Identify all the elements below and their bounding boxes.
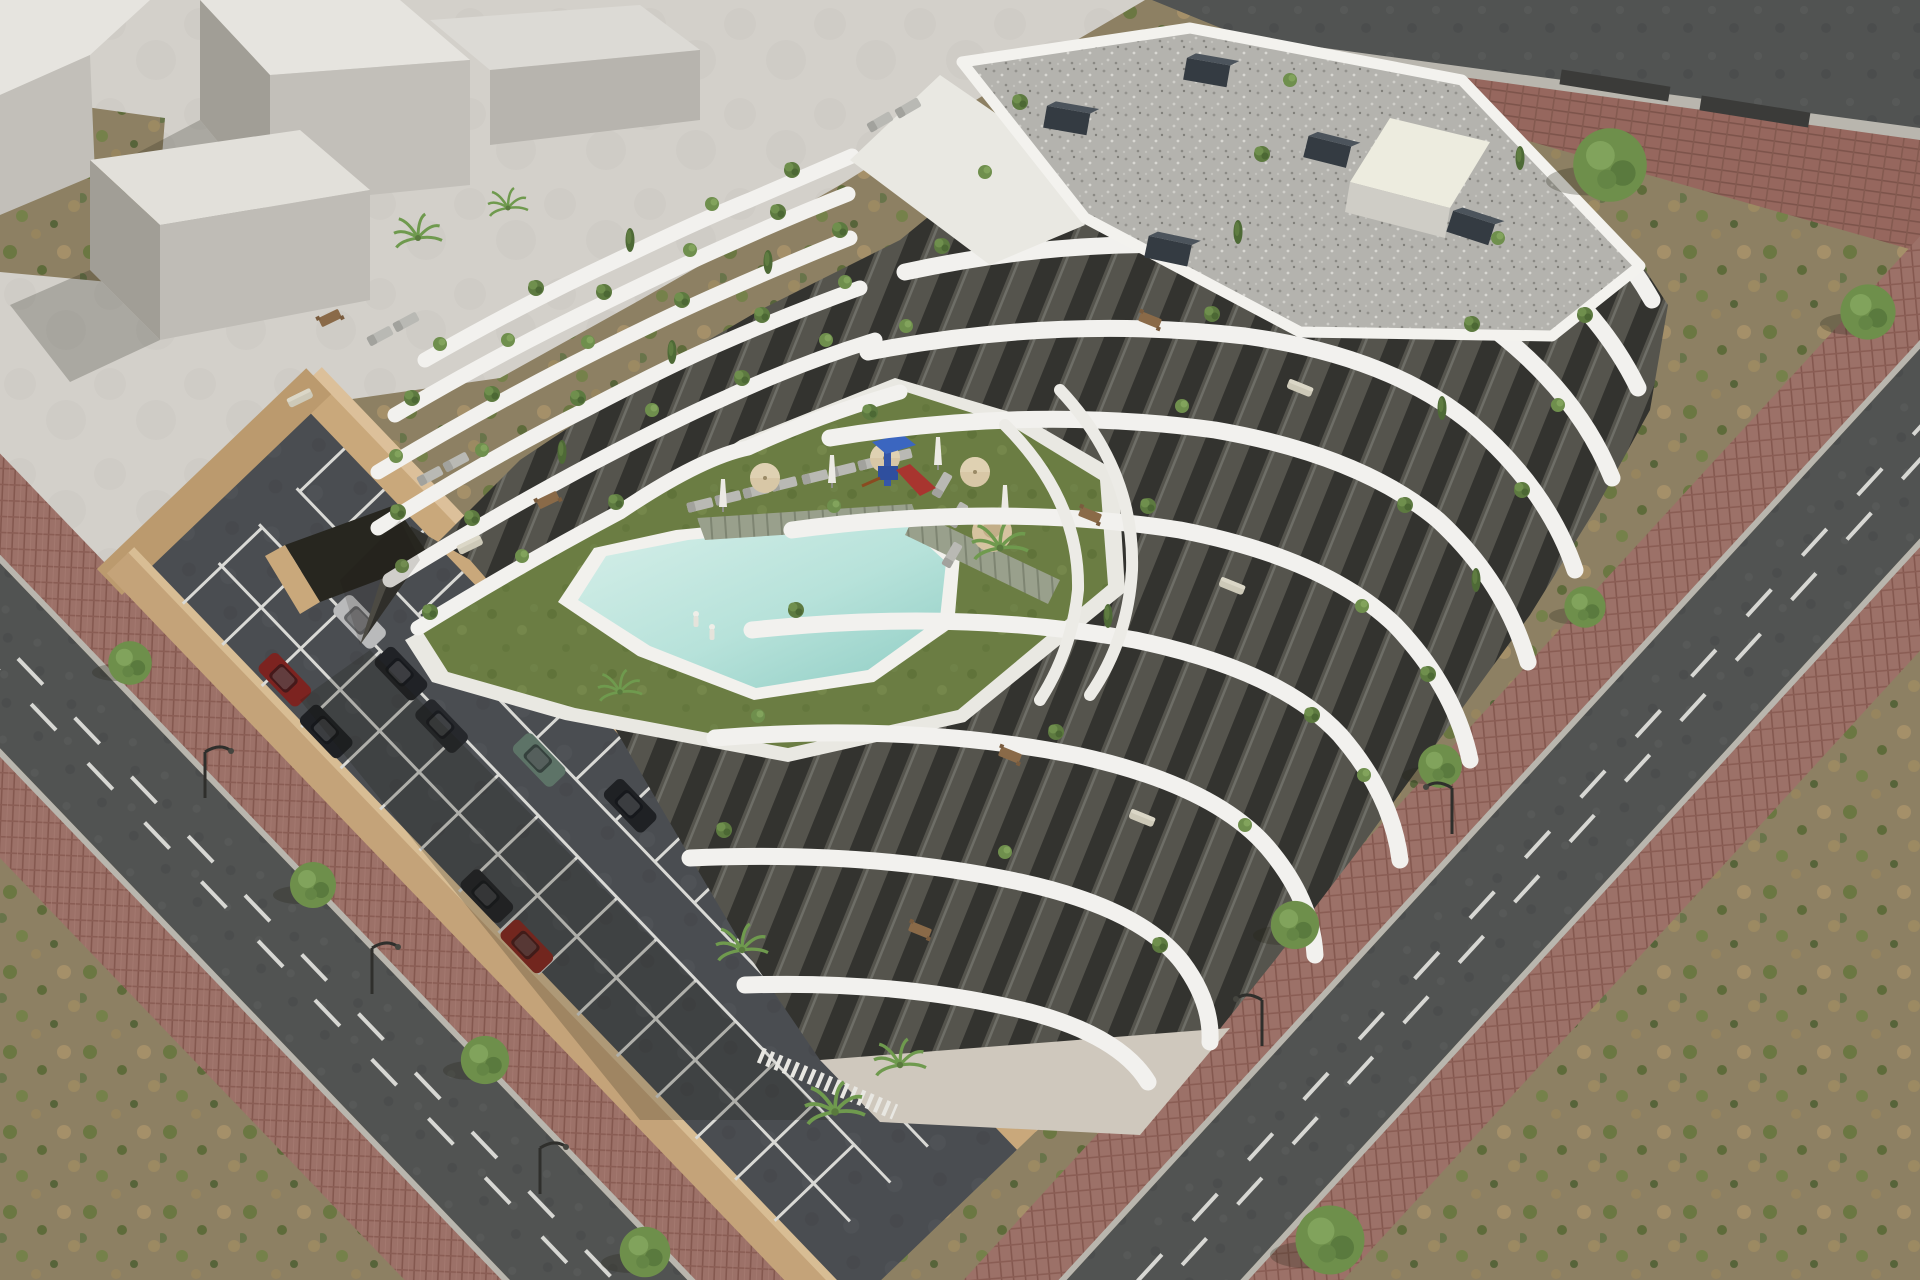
person [693, 611, 699, 627]
playground-platform [878, 466, 898, 480]
render-canvas [0, 0, 1920, 1280]
architectural-rendering [0, 0, 1920, 1280]
person [709, 624, 715, 640]
